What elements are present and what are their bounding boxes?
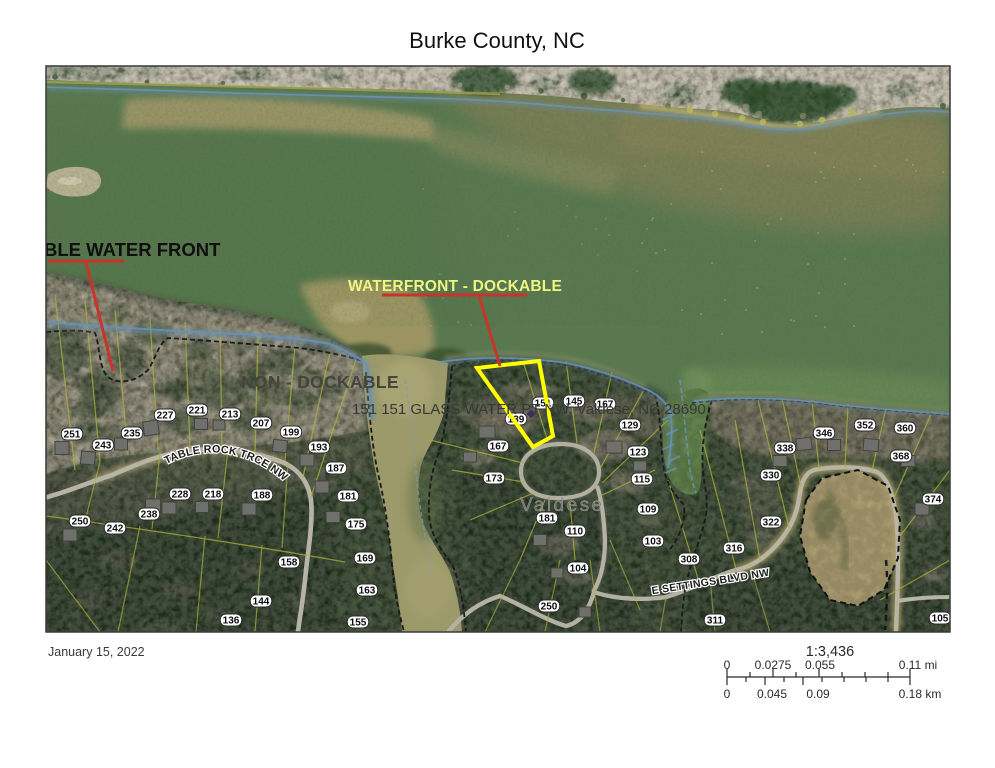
svg-text:144: 144 bbox=[253, 597, 270, 608]
svg-text:250: 250 bbox=[541, 602, 558, 613]
svg-text:322: 322 bbox=[763, 518, 780, 529]
svg-text:250: 250 bbox=[72, 517, 89, 528]
svg-text:316: 316 bbox=[726, 544, 743, 555]
svg-text:129: 129 bbox=[622, 421, 639, 432]
svg-text:187: 187 bbox=[328, 464, 345, 475]
svg-text:228: 228 bbox=[172, 490, 189, 501]
svg-text:338: 338 bbox=[777, 444, 794, 455]
svg-text:115: 115 bbox=[634, 475, 651, 486]
svg-text:104: 104 bbox=[570, 564, 587, 575]
svg-text:0.055: 0.055 bbox=[805, 658, 835, 672]
svg-text:155: 155 bbox=[350, 618, 367, 629]
svg-text:213: 213 bbox=[222, 410, 239, 421]
svg-text:173: 173 bbox=[486, 474, 503, 485]
svg-text:227: 227 bbox=[157, 411, 174, 422]
svg-text:NON - DOCKABLE: NON - DOCKABLE bbox=[241, 372, 399, 392]
svg-text:0: 0 bbox=[724, 687, 731, 701]
svg-text:346: 346 bbox=[816, 429, 833, 440]
svg-text:163: 163 bbox=[359, 586, 376, 597]
svg-text:181: 181 bbox=[539, 514, 556, 525]
svg-text:193: 193 bbox=[311, 443, 328, 454]
svg-text:199: 199 bbox=[283, 428, 300, 439]
svg-text:242: 242 bbox=[107, 524, 124, 535]
svg-text:110: 110 bbox=[567, 527, 584, 538]
svg-text:368: 368 bbox=[893, 452, 910, 463]
svg-text:158: 158 bbox=[281, 558, 298, 569]
svg-text:169: 169 bbox=[357, 554, 374, 565]
svg-text:0.09: 0.09 bbox=[806, 687, 830, 701]
svg-text:0.18 km: 0.18 km bbox=[899, 687, 942, 701]
svg-text:105: 105 bbox=[932, 614, 949, 625]
svg-text:207: 207 bbox=[253, 419, 270, 430]
svg-text:218: 218 bbox=[205, 490, 222, 501]
svg-text:Valdese: Valdese bbox=[520, 495, 605, 516]
svg-text:0.11 mi: 0.11 mi bbox=[899, 658, 937, 672]
svg-text:308: 308 bbox=[681, 555, 698, 566]
svg-text:123: 123 bbox=[630, 448, 647, 459]
svg-text:374: 374 bbox=[925, 495, 942, 506]
svg-text:WATERFRONT - DOCKABLE: WATERFRONT - DOCKABLE bbox=[348, 278, 562, 295]
svg-text:352: 352 bbox=[857, 421, 874, 432]
svg-text:181: 181 bbox=[340, 492, 357, 503]
svg-text:0.045: 0.045 bbox=[757, 687, 787, 701]
svg-text:238: 238 bbox=[141, 510, 158, 521]
svg-text:151 151 GLASS WATER PT NW, Val: 151 151 GLASS WATER PT NW, Valdese, NC 2… bbox=[352, 401, 706, 418]
svg-text:235: 235 bbox=[124, 429, 141, 440]
svg-text:136: 136 bbox=[223, 616, 240, 627]
svg-text:175: 175 bbox=[348, 520, 365, 531]
svg-text:109: 109 bbox=[640, 505, 657, 516]
svg-text:January 15, 2022: January 15, 2022 bbox=[48, 645, 145, 659]
svg-text:330: 330 bbox=[763, 471, 780, 482]
svg-text:251: 251 bbox=[64, 430, 81, 441]
svg-text:Burke County, NC: Burke County, NC bbox=[409, 28, 585, 53]
svg-text:BLE WATER FRONT: BLE WATER FRONT bbox=[44, 239, 221, 260]
svg-text:360: 360 bbox=[897, 424, 914, 435]
svg-text:167: 167 bbox=[490, 442, 507, 453]
svg-text:221: 221 bbox=[189, 406, 206, 417]
svg-text:243: 243 bbox=[95, 441, 112, 452]
svg-text:103: 103 bbox=[645, 537, 662, 548]
svg-text:188: 188 bbox=[254, 491, 271, 502]
svg-text:311: 311 bbox=[707, 616, 724, 627]
